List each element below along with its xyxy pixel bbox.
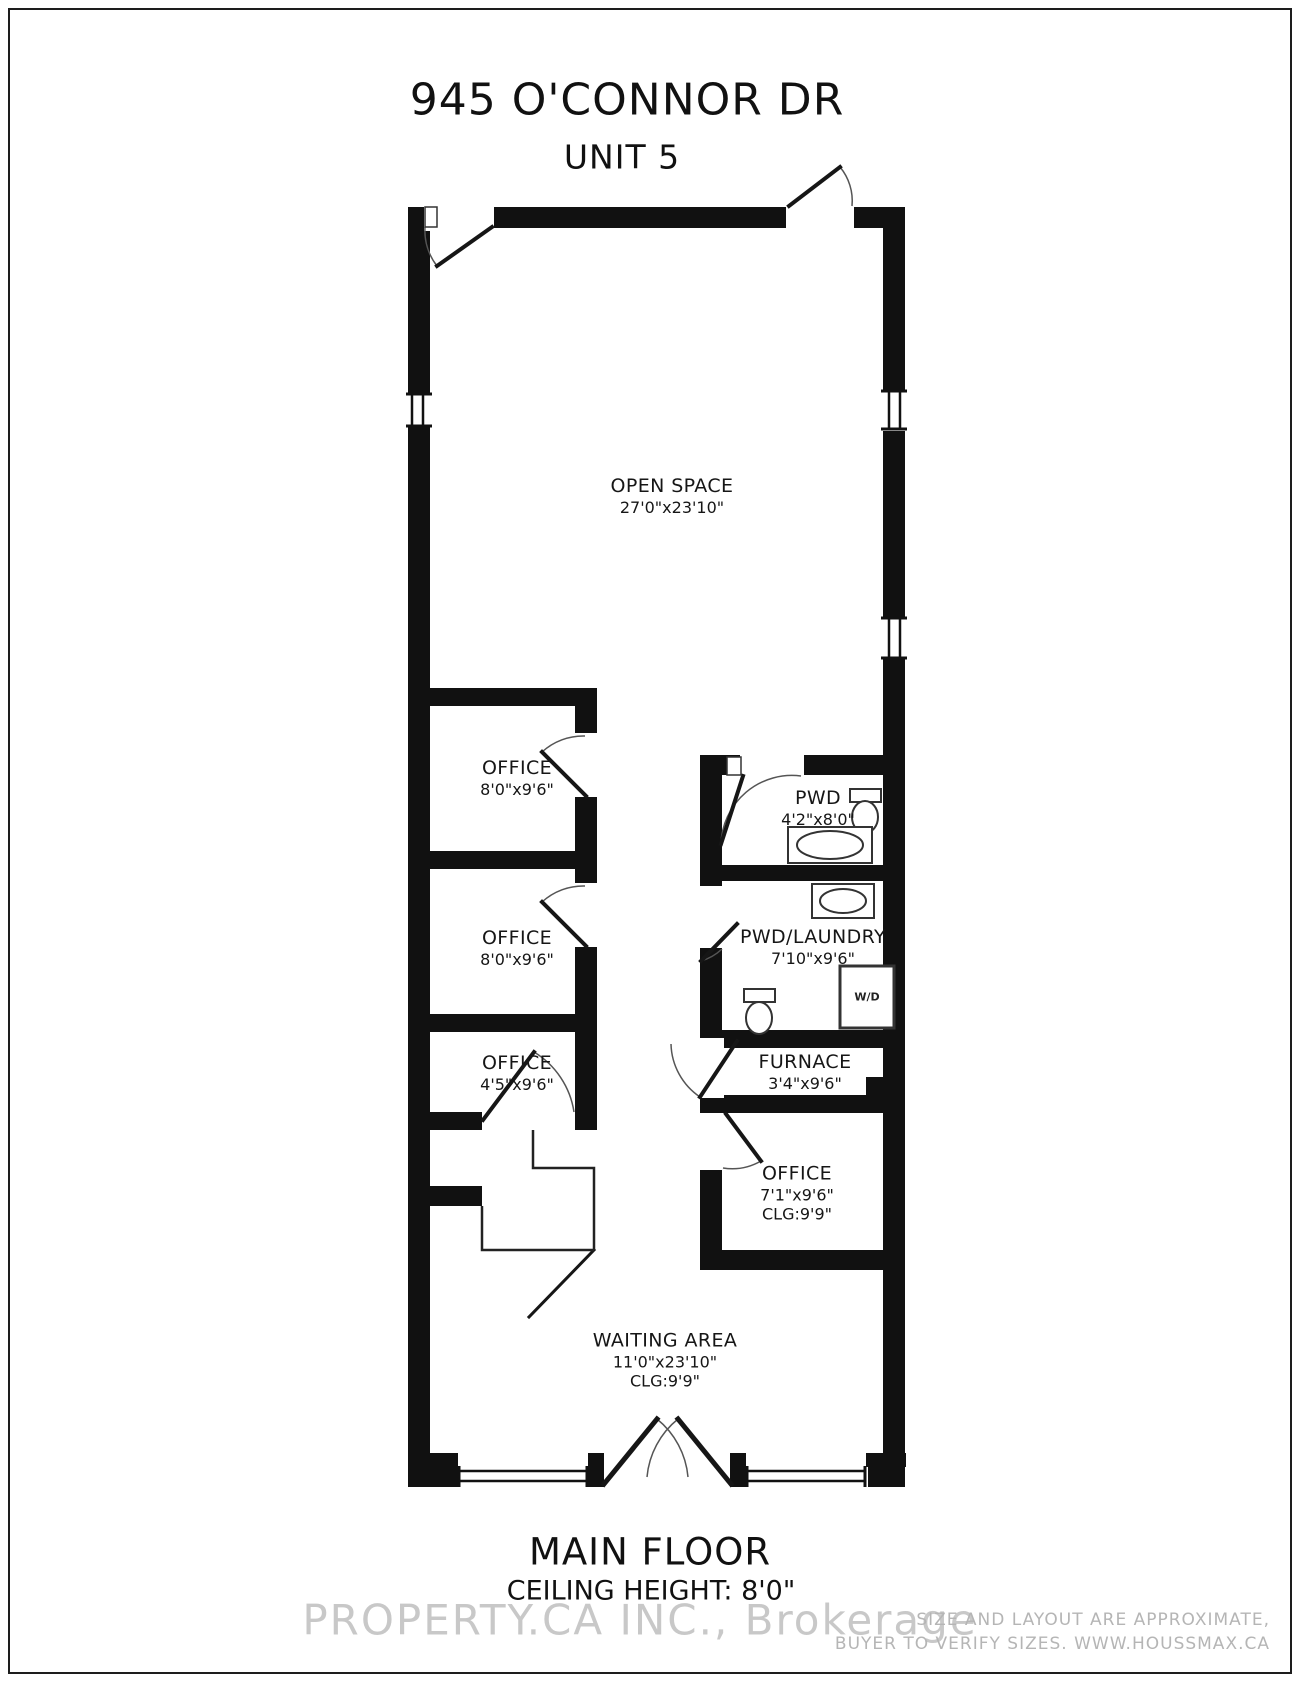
room-label-pwd: PWD 4'2"x8'0" (781, 787, 855, 829)
toilet-icon (744, 989, 775, 1034)
disclaimer-line-2: BUYER TO VERIFY SIZES. WWW.HOUSSMAX.CA (835, 1632, 1270, 1656)
room-label-office-1: OFFICE 8'0"x9'6" (480, 757, 554, 799)
floorplan-drawing (0, 0, 1300, 1682)
washer-dryer-label: W/D (854, 991, 879, 1004)
floorplan-page: 945 O'CONNOR DR UNIT 5 OPEN SPACE 27'0"x… (0, 0, 1300, 1682)
unit-subtitle: UNIT 5 (564, 138, 680, 177)
page-title: 945 O'CONNOR DR (410, 75, 845, 126)
room-label-open-space: OPEN SPACE 27'0"x23'10" (611, 475, 734, 517)
disclaimer-line-1: SIZE AND LAYOUT ARE APPROXIMATE, (835, 1608, 1270, 1632)
sink-icon (812, 884, 874, 918)
room-label-office-3: OFFICE 4'5"x9'6" (480, 1052, 554, 1094)
room-label-furnace: FURNACE 3'4"x9'6" (759, 1051, 852, 1093)
sink-icon (788, 827, 872, 863)
room-label-waiting-area: WAITING AREA 11'0"x23'10" CLG:9'9" (593, 1330, 738, 1391)
room-label-pwd-laundry: PWD/LAUNDRY 7'10"x9'6" (740, 926, 886, 968)
room-label-office-2: OFFICE 8'0"x9'6" (480, 927, 554, 969)
stair-partition (482, 1130, 594, 1250)
room-label-office-4: OFFICE 7'1"x9'6" CLG:9'9" (760, 1163, 834, 1224)
floor-name: MAIN FLOOR (529, 1531, 771, 1574)
disclaimer-text: SIZE AND LAYOUT ARE APPROXIMATE, BUYER T… (835, 1608, 1270, 1656)
